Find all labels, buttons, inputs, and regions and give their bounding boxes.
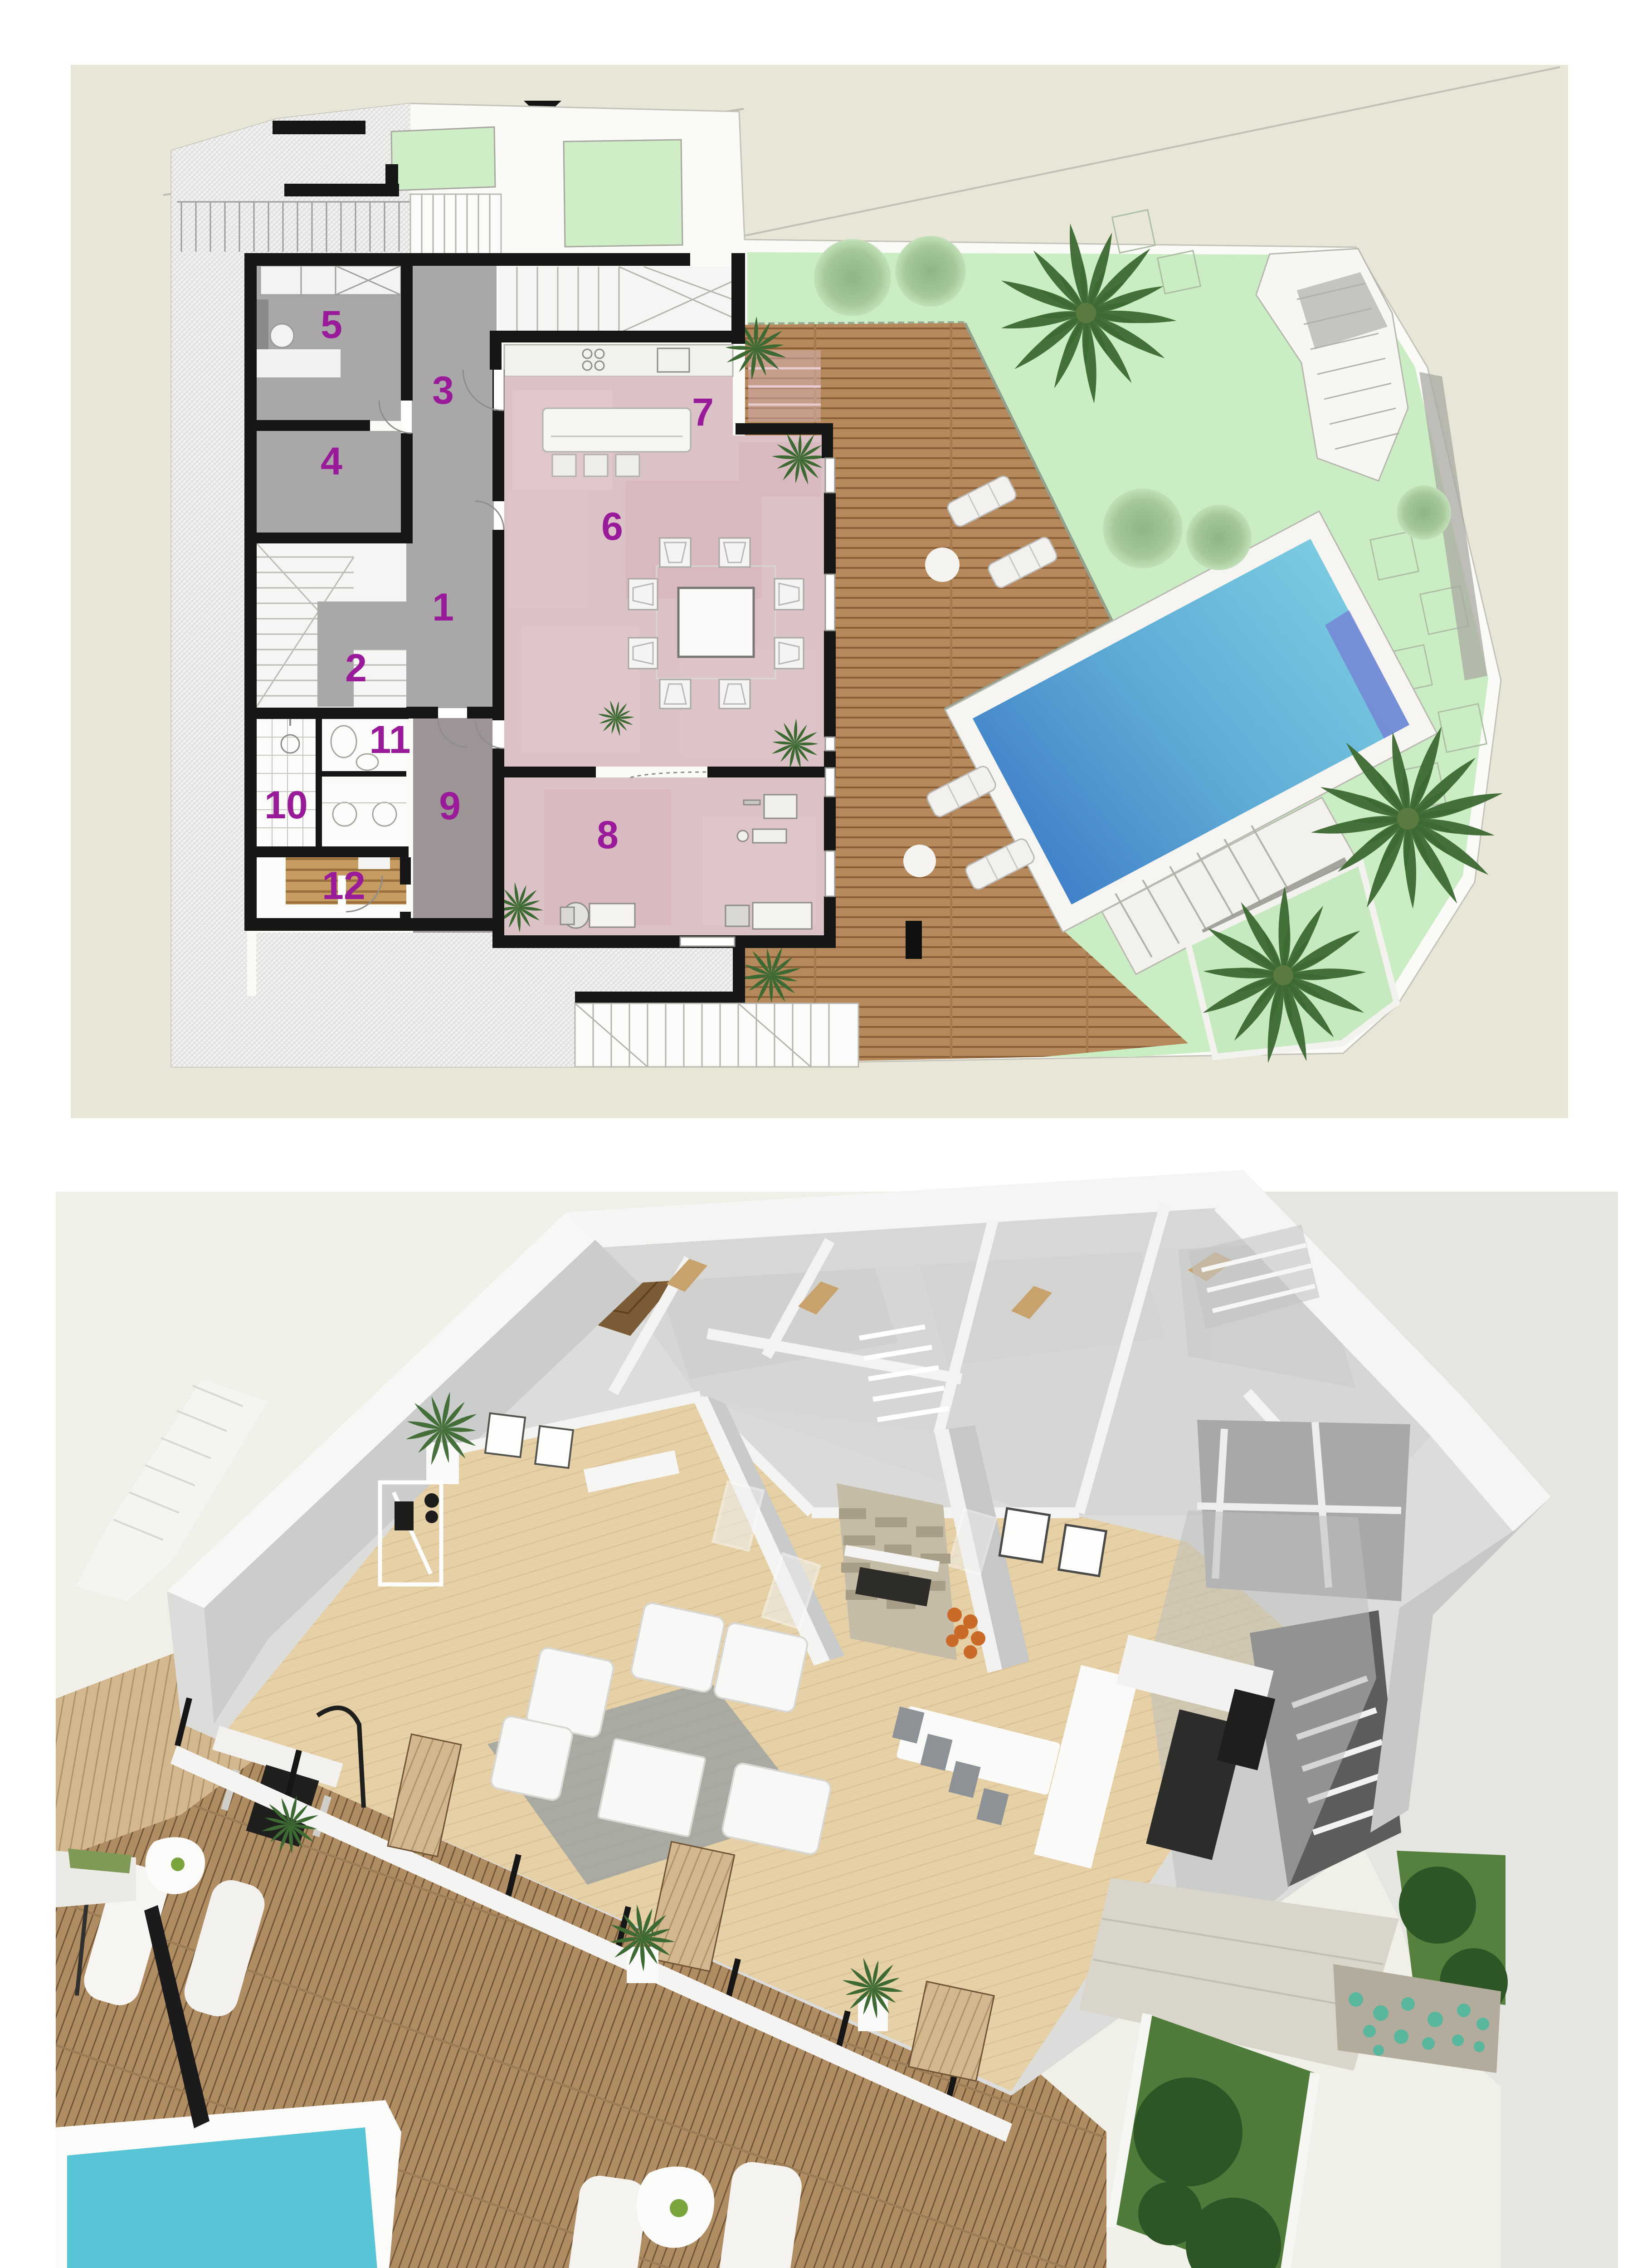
svg-text:12: 12 xyxy=(322,864,365,908)
svg-text:8: 8 xyxy=(597,813,619,857)
svg-text:6: 6 xyxy=(601,505,623,548)
svg-text:1: 1 xyxy=(432,586,454,629)
svg-text:4: 4 xyxy=(321,440,342,483)
svg-text:2: 2 xyxy=(345,646,367,690)
svg-text:10: 10 xyxy=(264,783,308,827)
svg-text:7: 7 xyxy=(692,391,714,434)
svg-text:5: 5 xyxy=(321,303,342,347)
svg-text:9: 9 xyxy=(439,784,461,828)
svg-text:11: 11 xyxy=(370,718,411,762)
svg-text:3: 3 xyxy=(432,369,454,412)
